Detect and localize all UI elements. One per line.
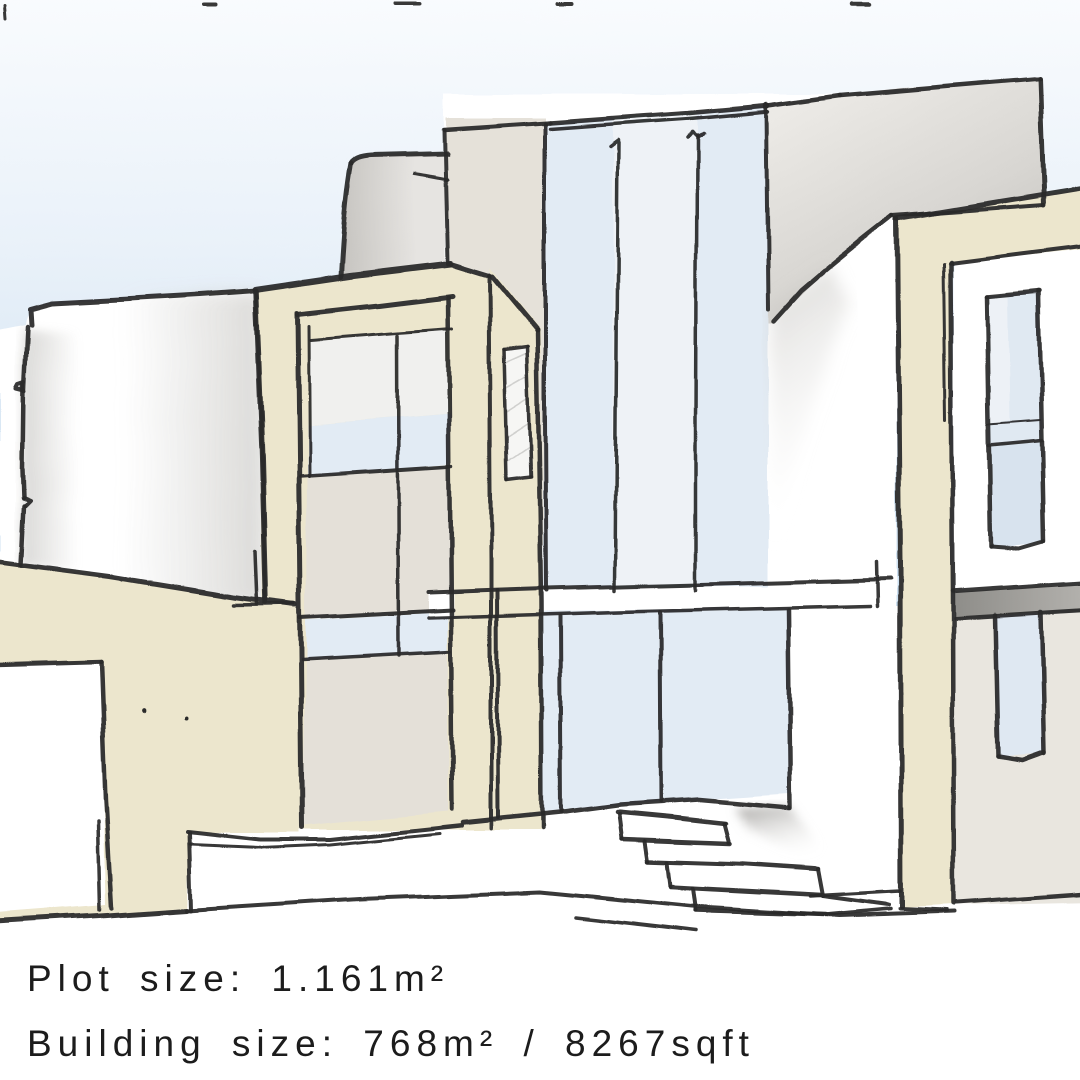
facade-panel-glass-1 <box>543 118 613 592</box>
right-hanging-window <box>994 612 1044 757</box>
size-captions: Plot size: 1.161m² Building size: 768m² … <box>27 956 755 1067</box>
small-gray-volume <box>341 152 447 280</box>
facade-panel-light <box>613 112 697 592</box>
real-estate-sketch-image: Plot size: 1.161m² Building size: 768m² … <box>0 0 1080 1080</box>
architectural-sketch-canvas <box>0 0 1080 1080</box>
plot-size-text: Plot size: 1.161m² <box>27 956 755 1002</box>
tower-window-pane-upper <box>307 329 450 426</box>
left-white-building <box>0 291 266 612</box>
building-size-text: Building size: 768m² / 8267sqft <box>27 1021 755 1067</box>
garage-opening <box>0 663 106 914</box>
facade-panel-glass-2 <box>697 106 768 592</box>
